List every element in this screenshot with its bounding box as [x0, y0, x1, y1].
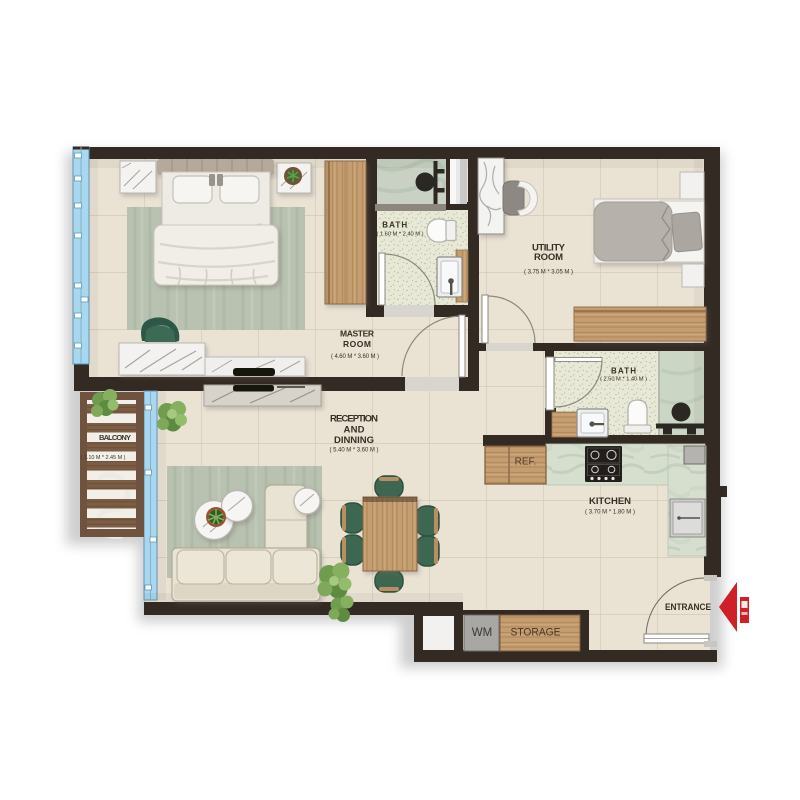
svg-text:( 4.60 M * 3.60 M ): ( 4.60 M * 3.60 M )	[331, 354, 379, 360]
svg-text:MASTER: MASTER	[340, 329, 374, 339]
svg-text:ROOM: ROOM	[343, 339, 371, 349]
svg-text:( 3.70 M * 1.80 M ): ( 3.70 M * 1.80 M )	[585, 510, 635, 516]
svg-text:REF.: REF.	[515, 457, 537, 468]
svg-text:( 1.60 M * 2.40 M ): ( 1.60 M * 2.40 M )	[377, 232, 424, 238]
svg-text:RECEPTION: RECEPTION	[330, 414, 378, 425]
svg-text:( 5.40 M * 3.60 M ): ( 5.40 M * 3.60 M )	[330, 448, 379, 454]
svg-text:WM: WM	[472, 627, 492, 639]
svg-text:AND: AND	[344, 425, 365, 436]
svg-text:KITCHEN: KITCHEN	[589, 496, 631, 507]
svg-text:BATH: BATH	[611, 367, 636, 376]
svg-text:( 1.10 M * 2.45 M ): ( 1.10 M * 2.45 M )	[81, 455, 126, 461]
svg-text:DINNING: DINNING	[334, 435, 374, 446]
svg-text:ROOM: ROOM	[534, 252, 563, 263]
svg-text:BATH: BATH	[382, 220, 407, 229]
svg-text:( 3.75 M * 3.05 M ): ( 3.75 M * 3.05 M )	[524, 270, 573, 276]
svg-text:STORAGE: STORAGE	[511, 627, 561, 639]
svg-text:BALCONY: BALCONY	[99, 433, 131, 442]
svg-text:( 2.50 M * 1.40 M ): ( 2.50 M * 1.40 M )	[600, 377, 647, 383]
svg-text:ENTRANCE: ENTRANCE	[665, 602, 711, 612]
